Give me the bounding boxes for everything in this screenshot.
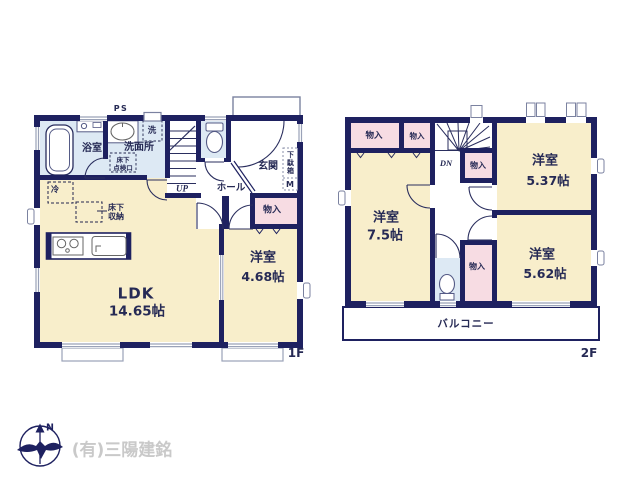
closet-a-label-2f: 物入 — [365, 132, 382, 141]
casement-window-flap — [537, 103, 546, 117]
bath-label: 浴室 — [82, 144, 102, 154]
stairs-2f — [435, 123, 490, 151]
compass-icon — [17, 424, 63, 467]
entrance-label: 玄関 — [258, 162, 278, 172]
closet-label-1f: 物入 — [263, 207, 281, 216]
bird-silhouette — [17, 441, 63, 459]
toilet-icon-2f — [440, 275, 455, 301]
step-right — [222, 348, 283, 361]
kitchen-counter-icon — [47, 233, 131, 259]
casement-window-flap — [527, 103, 536, 117]
company-watermark: (有)三陽建銘 — [72, 443, 173, 460]
balcony-label: バルコニー — [437, 319, 494, 330]
ldk-label: LDK — [118, 287, 155, 302]
bedroom-a-label-2f: 洋室 — [373, 212, 399, 225]
bedroom-b-size-label-2f: 5.37帖 — [526, 175, 569, 188]
stairs-down-label: DN — [440, 159, 452, 168]
awning-window-flap — [339, 191, 346, 205]
toilet-icon-1f — [206, 123, 223, 153]
awning-window-flap — [598, 159, 605, 173]
awning-window-flap — [598, 251, 605, 265]
casement-window-flap — [577, 103, 586, 117]
floorplan-page: PS 浴室 洗面所 洗 床下 点検口 冷 床下 収納 UP ホール 玄関 下駄箱… — [0, 0, 640, 480]
shoe-cabinet-label: 下駄箱 — [287, 151, 294, 175]
bedroom-c-size-label-2f: 5.62帖 — [523, 268, 566, 281]
floorplan-1f — [28, 97, 311, 361]
underfloor-hatch-label: 点検口 — [113, 165, 133, 172]
fridge-label: 冷 — [51, 186, 59, 194]
compass-north-label: N — [46, 423, 54, 433]
closet-c-label-2f: 物入 — [470, 162, 486, 170]
closet-d-label-2f: 物入 — [469, 263, 485, 271]
ldk-size-label: 14.65帖 — [109, 305, 165, 319]
floorplan-drawing — [0, 0, 640, 480]
underfloor-storage-label: 収納 — [108, 213, 124, 221]
underfloor-hatch-label: 床下 — [117, 157, 130, 164]
stairs-up-label: UP — [176, 185, 188, 194]
meter-label: M — [286, 181, 294, 189]
step-left — [62, 348, 123, 361]
washroom-label: 洗面所 — [124, 143, 154, 153]
casement-window-flap — [567, 103, 576, 117]
closet-b-label-2f: 物入 — [410, 132, 425, 140]
vanity-sink-icon — [107, 121, 138, 143]
ps-label: PS — [114, 105, 129, 113]
underfloor-storage-label: 床下 — [108, 204, 124, 212]
floor-label-1f: 1F — [288, 347, 305, 359]
bedroom-c-label-2f: 洋室 — [529, 249, 555, 262]
awning-window-flap — [304, 283, 311, 298]
bedroom-label-1f: 洋室 — [250, 252, 276, 265]
floor-label-2f: 2F — [581, 347, 598, 359]
washer-label: 洗 — [148, 127, 157, 136]
bedroom-b-label-2f: 洋室 — [532, 155, 558, 168]
awning-window-flap — [28, 209, 35, 224]
hall-label: ホール — [217, 183, 246, 193]
bedroom-size-label-1f: 4.68帖 — [241, 271, 284, 284]
casement-window-flap — [471, 106, 482, 118]
bedroom-a-size-label-2f: 7.5帖 — [367, 230, 403, 243]
